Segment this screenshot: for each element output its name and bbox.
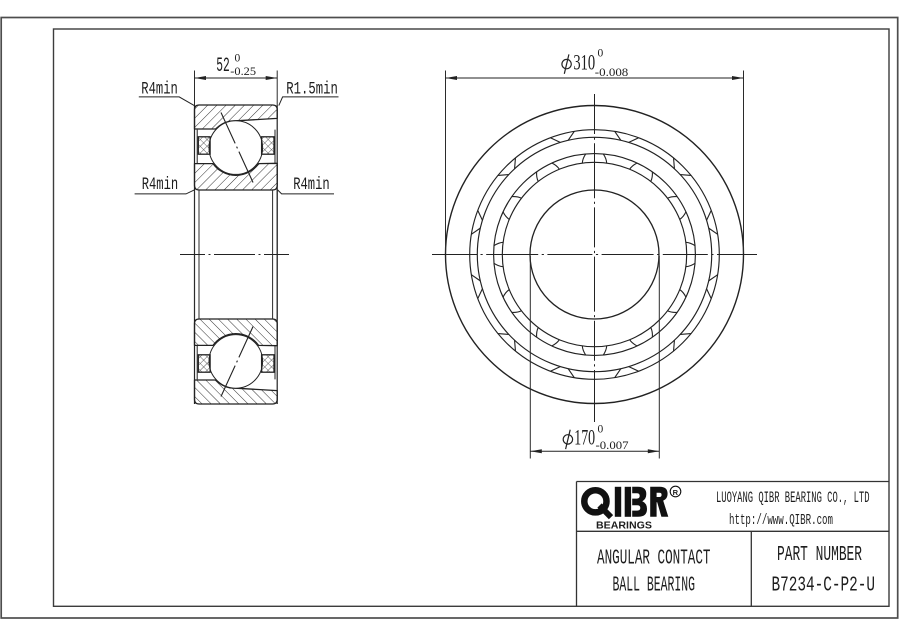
svg-text:-0.007: -0.007	[596, 440, 629, 452]
svg-text:ANGULAR CONTACT: ANGULAR CONTACT	[597, 547, 711, 571]
svg-text:BALL BEARING: BALL BEARING	[613, 574, 696, 598]
svg-text:PART NUMBER: PART NUMBER	[777, 544, 862, 567]
svg-text:R4min: R4min	[293, 175, 330, 195]
svg-text:0: 0	[598, 48, 604, 60]
svg-text:R4min: R4min	[142, 175, 179, 195]
svg-text:B7234-C-P2-U: B7234-C-P2-U	[772, 574, 876, 598]
svg-text:LUOYANG QIBR BEARING CO., LTD: LUOYANG QIBR BEARING CO., LTD	[716, 489, 870, 507]
svg-text:R: R	[673, 488, 679, 497]
svg-text:0: 0	[598, 424, 604, 436]
svg-text:-0.25: -0.25	[230, 66, 256, 78]
svg-text:170: 170	[574, 425, 595, 450]
svg-text:http://www.QIBR.com: http://www.QIBR.com	[729, 512, 833, 529]
svg-text:310: 310	[573, 49, 595, 74]
svg-text:-0.008: -0.008	[595, 67, 629, 79]
svg-text:52: 52	[216, 55, 230, 78]
svg-text:BEARINGS: BEARINGS	[596, 521, 652, 532]
svg-text:0: 0	[235, 53, 241, 65]
